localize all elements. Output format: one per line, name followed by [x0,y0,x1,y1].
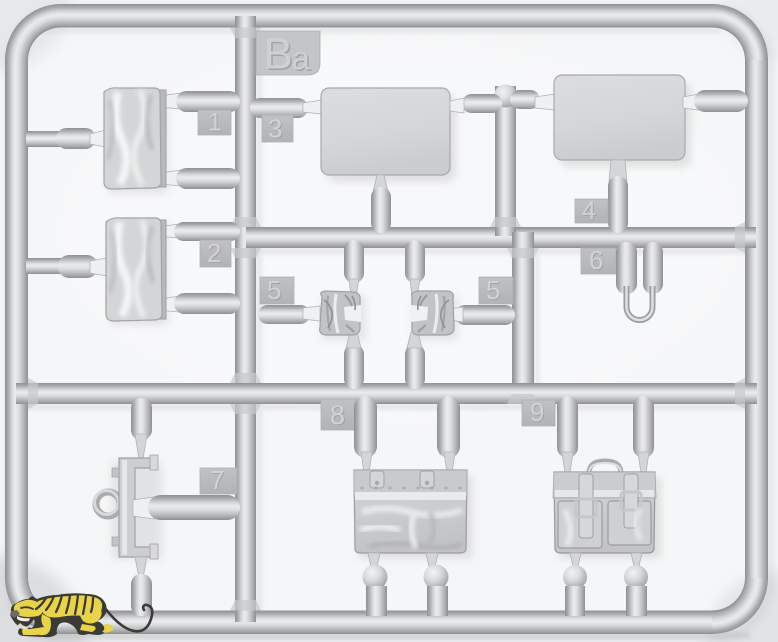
svg-text:6: 6 [589,245,603,275]
svg-text:a: a [292,40,311,77]
svg-text:8: 8 [330,400,345,430]
svg-text:7: 7 [210,465,224,495]
svg-text:B: B [264,30,293,79]
svg-text:5: 5 [267,275,281,305]
svg-text:5: 5 [486,275,500,305]
svg-text:2: 2 [207,238,221,268]
svg-text:3: 3 [268,114,282,144]
svg-text:4: 4 [582,197,596,225]
svg-text:9: 9 [530,397,544,427]
svg-text:1: 1 [208,109,222,137]
